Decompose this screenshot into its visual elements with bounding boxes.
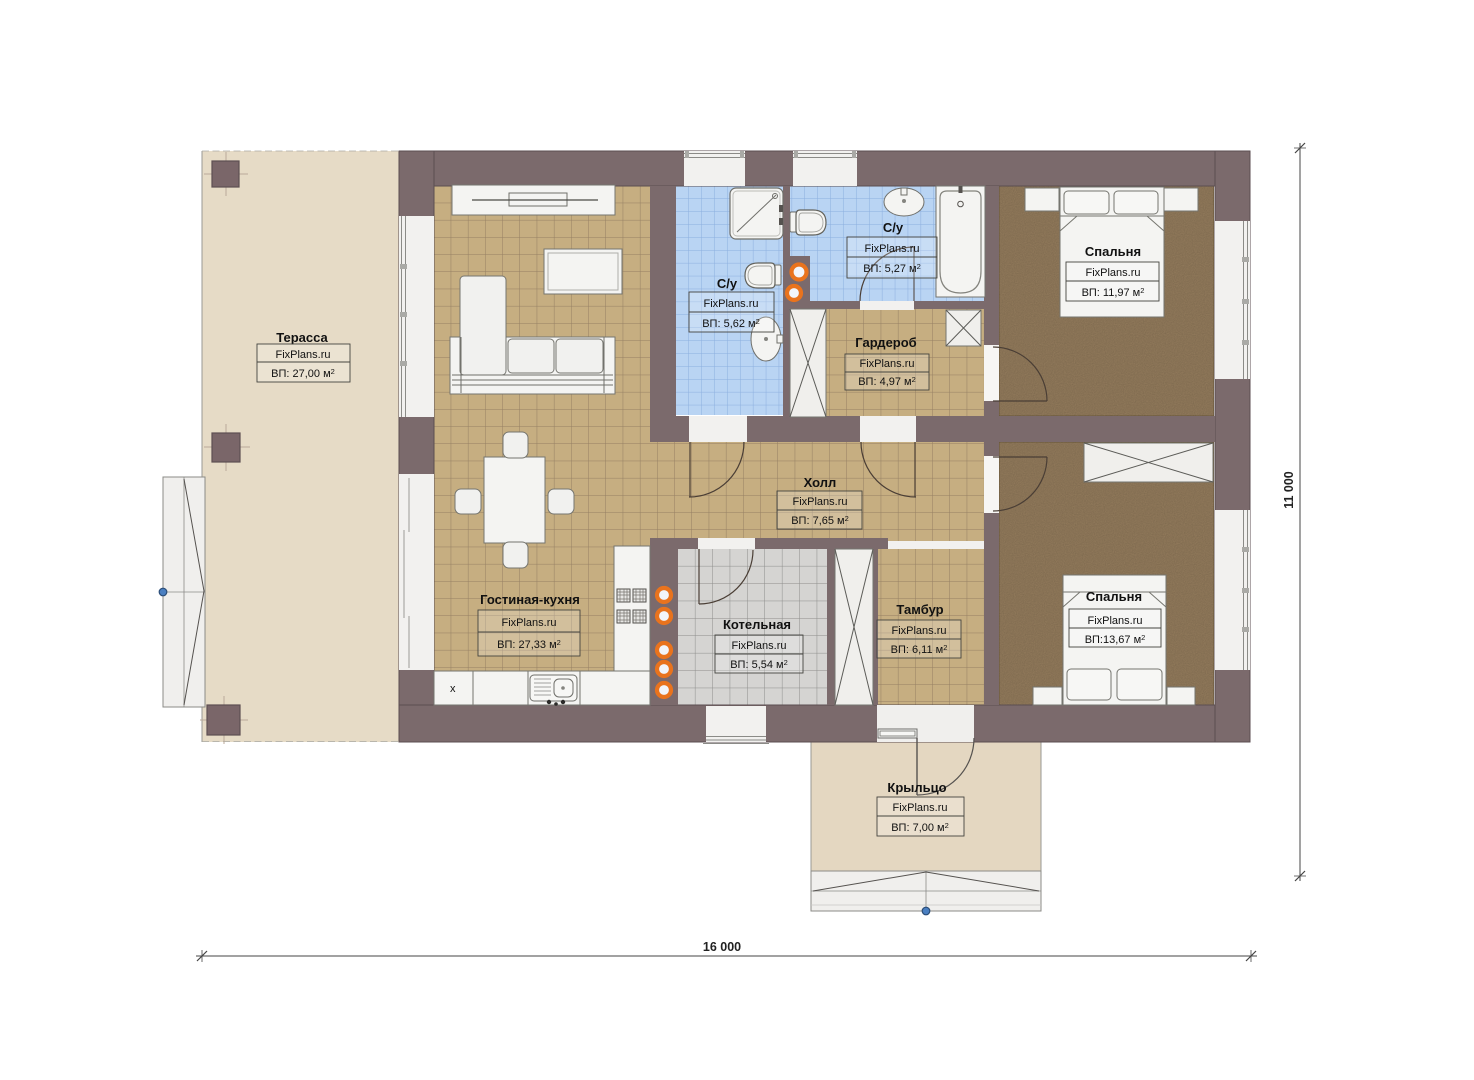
svg-text:Гостиная-кухня: Гостиная-кухня bbox=[480, 592, 580, 607]
svg-text:Котельная: Котельная bbox=[723, 617, 791, 632]
svg-text:ВП: 11,97 м2: ВП: 11,97 м2 bbox=[1082, 286, 1145, 299]
svg-text:FixPlans.ru: FixPlans.ru bbox=[501, 617, 556, 629]
svg-text:Спальня: Спальня bbox=[1085, 244, 1141, 259]
svg-text:ВП: 27,33 м2: ВП: 27,33 м2 bbox=[497, 638, 561, 651]
svg-text:ВП: 7,00 м2: ВП: 7,00 м2 bbox=[891, 821, 949, 834]
svg-text:ВП:13,67 м2: ВП:13,67 м2 bbox=[1085, 633, 1146, 646]
svg-text:С/у: С/у bbox=[717, 276, 738, 291]
svg-text:FixPlans.ru: FixPlans.ru bbox=[1085, 267, 1140, 279]
svg-text:Гардероб: Гардероб bbox=[855, 335, 916, 350]
svg-text:Спальня: Спальня bbox=[1086, 589, 1142, 604]
svg-text:ВП: 4,97 м2: ВП: 4,97 м2 bbox=[858, 375, 916, 388]
svg-text:Терасса: Терасса bbox=[276, 330, 328, 345]
svg-text:ВП: 5,27 м2: ВП: 5,27 м2 bbox=[863, 262, 921, 275]
svg-text:С/у: С/у bbox=[883, 220, 904, 235]
svg-text:FixPlans.ru: FixPlans.ru bbox=[1087, 615, 1142, 627]
svg-text:Крыльцо: Крыльцо bbox=[887, 780, 946, 795]
svg-text:Холл: Холл bbox=[804, 475, 837, 490]
svg-text:Тамбур: Тамбур bbox=[896, 602, 943, 617]
svg-text:ВП: 6,11 м2: ВП: 6,11 м2 bbox=[891, 643, 948, 656]
svg-text:FixPlans.ru: FixPlans.ru bbox=[703, 298, 758, 310]
svg-text:FixPlans.ru: FixPlans.ru bbox=[859, 358, 914, 370]
svg-text:FixPlans.ru: FixPlans.ru bbox=[275, 349, 330, 361]
svg-text:ВП: 7,65 м2: ВП: 7,65 м2 bbox=[791, 514, 849, 527]
svg-text:x: x bbox=[450, 683, 456, 695]
svg-text:FixPlans.ru: FixPlans.ru bbox=[731, 640, 786, 652]
svg-text:FixPlans.ru: FixPlans.ru bbox=[891, 625, 946, 637]
svg-text:FixPlans.ru: FixPlans.ru bbox=[792, 496, 847, 508]
svg-text:FixPlans.ru: FixPlans.ru bbox=[892, 802, 947, 814]
svg-text:ВП: 5,54 м2: ВП: 5,54 м2 bbox=[730, 658, 788, 671]
svg-text:11 000: 11 000 bbox=[1282, 471, 1296, 509]
svg-text:ВП: 5,62 м2: ВП: 5,62 м2 bbox=[702, 317, 760, 330]
svg-text:FixPlans.ru: FixPlans.ru bbox=[864, 243, 919, 255]
svg-text:ВП: 27,00 м2: ВП: 27,00 м2 bbox=[271, 367, 335, 380]
svg-text:16 000: 16 000 bbox=[703, 940, 741, 954]
